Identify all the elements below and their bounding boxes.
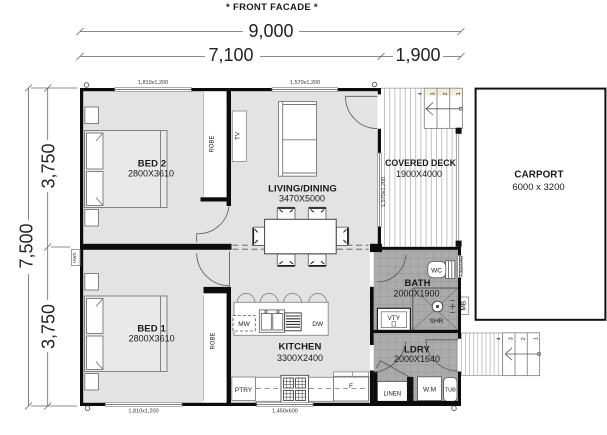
svg-text:9,000: 9,000 bbox=[248, 21, 293, 41]
svg-text:LINEN: LINEN bbox=[383, 391, 401, 397]
svg-text:3470X5000: 3470X5000 bbox=[279, 194, 325, 204]
svg-text:730x940: 730x940 bbox=[459, 256, 465, 277]
svg-text:1: 1 bbox=[456, 92, 462, 95]
svg-text:F: F bbox=[349, 383, 353, 390]
svg-text:BATH: BATH bbox=[404, 278, 430, 289]
svg-text:CARPORT: CARPORT bbox=[514, 170, 563, 181]
svg-text:1,570x1,260: 1,570x1,260 bbox=[381, 177, 387, 207]
svg-text:HWS: HWS bbox=[72, 253, 77, 264]
svg-text:DW: DW bbox=[312, 321, 324, 328]
svg-text:SHR: SHR bbox=[430, 318, 444, 325]
svg-text:ROBE: ROBE bbox=[210, 332, 216, 349]
svg-text:2000X1640: 2000X1640 bbox=[394, 354, 440, 364]
svg-text:1: 1 bbox=[533, 337, 539, 340]
svg-text:3: 3 bbox=[431, 92, 437, 95]
svg-text:WC: WC bbox=[431, 267, 442, 274]
svg-text:4: 4 bbox=[418, 92, 424, 95]
svg-text:3,750: 3,750 bbox=[38, 143, 58, 188]
svg-text:7,500: 7,500 bbox=[16, 223, 36, 268]
svg-text:W.M: W.M bbox=[423, 387, 436, 394]
svg-text:2: 2 bbox=[443, 92, 449, 95]
svg-text:1,810x1,200: 1,810x1,200 bbox=[138, 80, 168, 86]
svg-text:* FRONT FACADE *: * FRONT FACADE * bbox=[226, 2, 318, 13]
svg-text:4: 4 bbox=[496, 337, 502, 340]
svg-text:2: 2 bbox=[521, 337, 527, 340]
svg-text:1900X4000: 1900X4000 bbox=[396, 169, 442, 179]
svg-text:2800X3610: 2800X3610 bbox=[129, 334, 175, 344]
svg-text:COVERED DECK: COVERED DECK bbox=[385, 158, 457, 168]
svg-text:3300X2400: 3300X2400 bbox=[277, 353, 323, 363]
svg-text:7,100: 7,100 bbox=[208, 45, 253, 65]
svg-text:3: 3 bbox=[509, 337, 515, 340]
svg-text:1,450x600: 1,450x600 bbox=[272, 409, 298, 415]
svg-text:1,570x1,200: 1,570x1,200 bbox=[290, 80, 320, 86]
svg-text:VTY: VTY bbox=[387, 315, 400, 322]
svg-text:3,750: 3,750 bbox=[38, 304, 58, 349]
svg-text:1,810x1,200: 1,810x1,200 bbox=[128, 409, 158, 415]
svg-text:2000X1900: 2000X1900 bbox=[393, 289, 439, 299]
svg-text:KITCHEN: KITCHEN bbox=[279, 342, 322, 353]
svg-text:6000 x 3200: 6000 x 3200 bbox=[512, 182, 564, 193]
svg-text:PTRY: PTRY bbox=[235, 387, 253, 394]
svg-text:2800X3610: 2800X3610 bbox=[128, 169, 174, 179]
svg-text:MB: MB bbox=[460, 301, 467, 311]
svg-text:ROBE: ROBE bbox=[210, 135, 216, 152]
svg-text:MW: MW bbox=[238, 321, 250, 328]
svg-text:1,900: 1,900 bbox=[395, 45, 440, 65]
svg-text:TUB: TUB bbox=[445, 388, 456, 394]
svg-text:TV: TV bbox=[235, 132, 241, 140]
